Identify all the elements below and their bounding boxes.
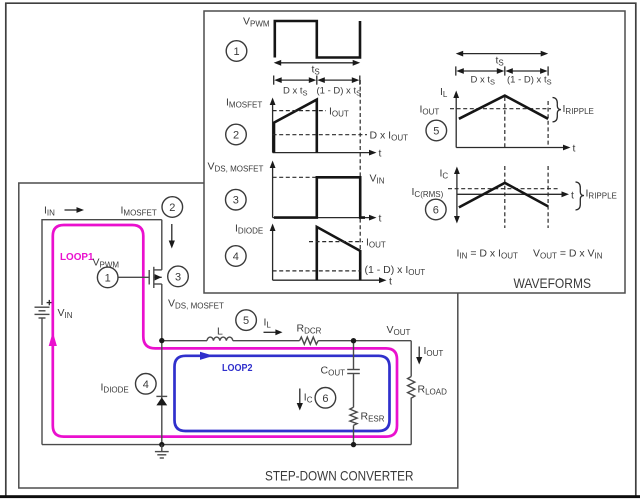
svg-text:t: t [379,148,382,160]
svg-text:6: 6 [433,205,439,217]
svg-text:t: t [571,190,574,202]
svg-text:5: 5 [243,315,249,327]
svg-text:LOOP2: LOOP2 [222,362,253,374]
svg-text:STEP-DOWN CONVERTER: STEP-DOWN CONVERTER [265,468,414,484]
svg-text:t: t [379,213,382,225]
svg-text:4: 4 [233,251,239,263]
svg-text:3: 3 [233,195,239,207]
svg-text:L: L [217,326,223,338]
svg-text:t: t [573,143,576,155]
svg-text:t: t [389,276,392,288]
svg-text:4: 4 [143,379,149,391]
svg-text:2: 2 [169,202,175,214]
svg-text:5: 5 [433,126,439,138]
svg-text:(1 - D) x tS: (1 - D) x tS [317,86,362,98]
svg-text:1: 1 [105,272,111,284]
svg-text:1: 1 [233,46,239,58]
svg-text:3: 3 [175,271,181,283]
svg-text:6: 6 [322,393,328,405]
svg-text:2: 2 [233,130,239,142]
svg-text:WAVEFORMS: WAVEFORMS [514,275,592,291]
svg-text:LOOP1: LOOP1 [60,251,94,263]
svg-text:(1 - D) x tS: (1 - D) x tS [507,75,552,87]
